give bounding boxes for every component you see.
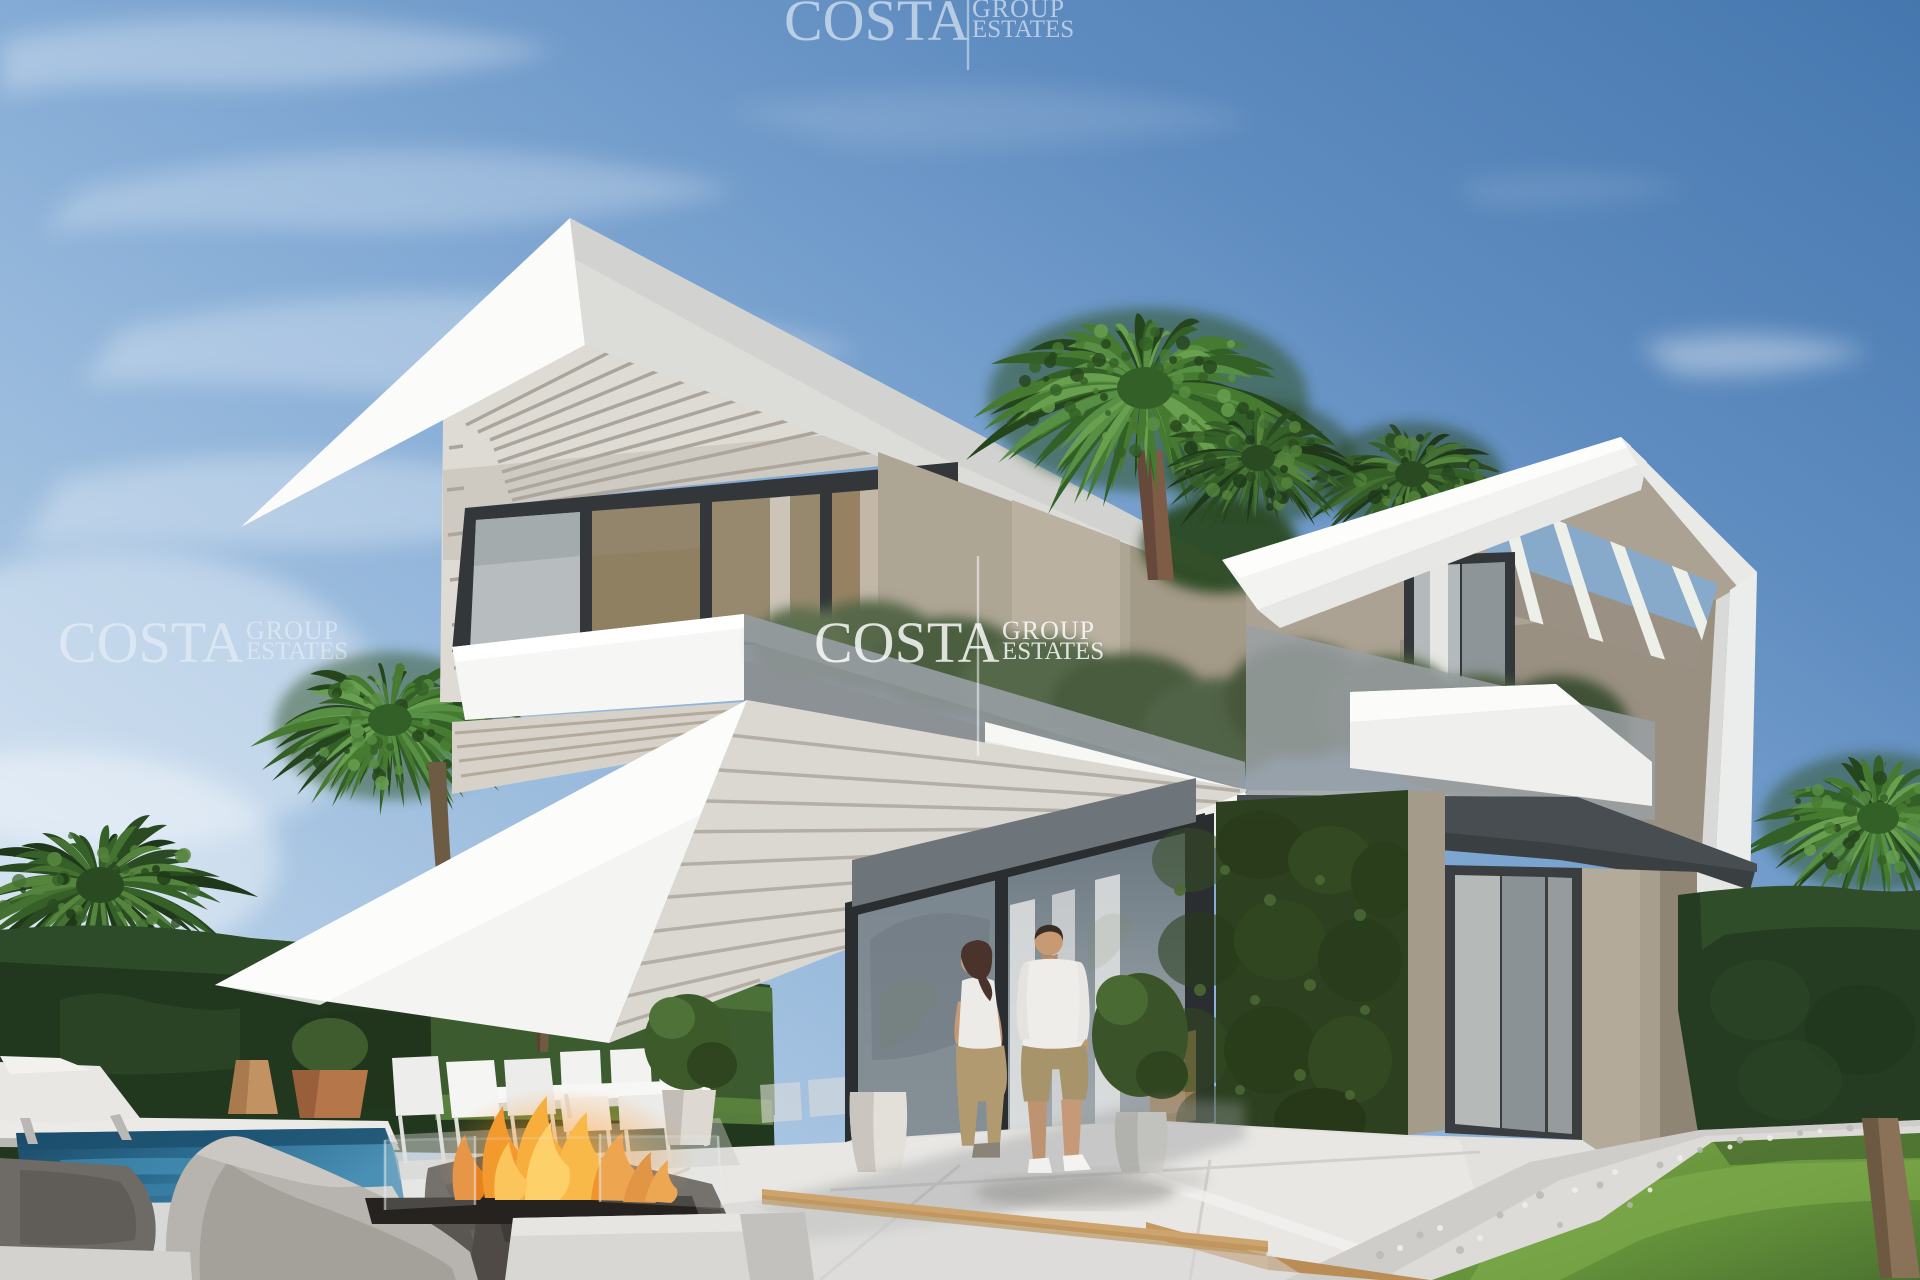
svg-text:ESTATES: ESTATES: [246, 638, 348, 665]
svg-text:ESTATES: ESTATES: [972, 16, 1074, 43]
svg-text:COSTA: COSTA: [814, 610, 1000, 675]
svg-text:ESTATES: ESTATES: [1002, 638, 1104, 665]
svg-text:COSTA: COSTA: [58, 610, 244, 675]
svg-text:COSTA: COSTA: [784, 0, 970, 53]
